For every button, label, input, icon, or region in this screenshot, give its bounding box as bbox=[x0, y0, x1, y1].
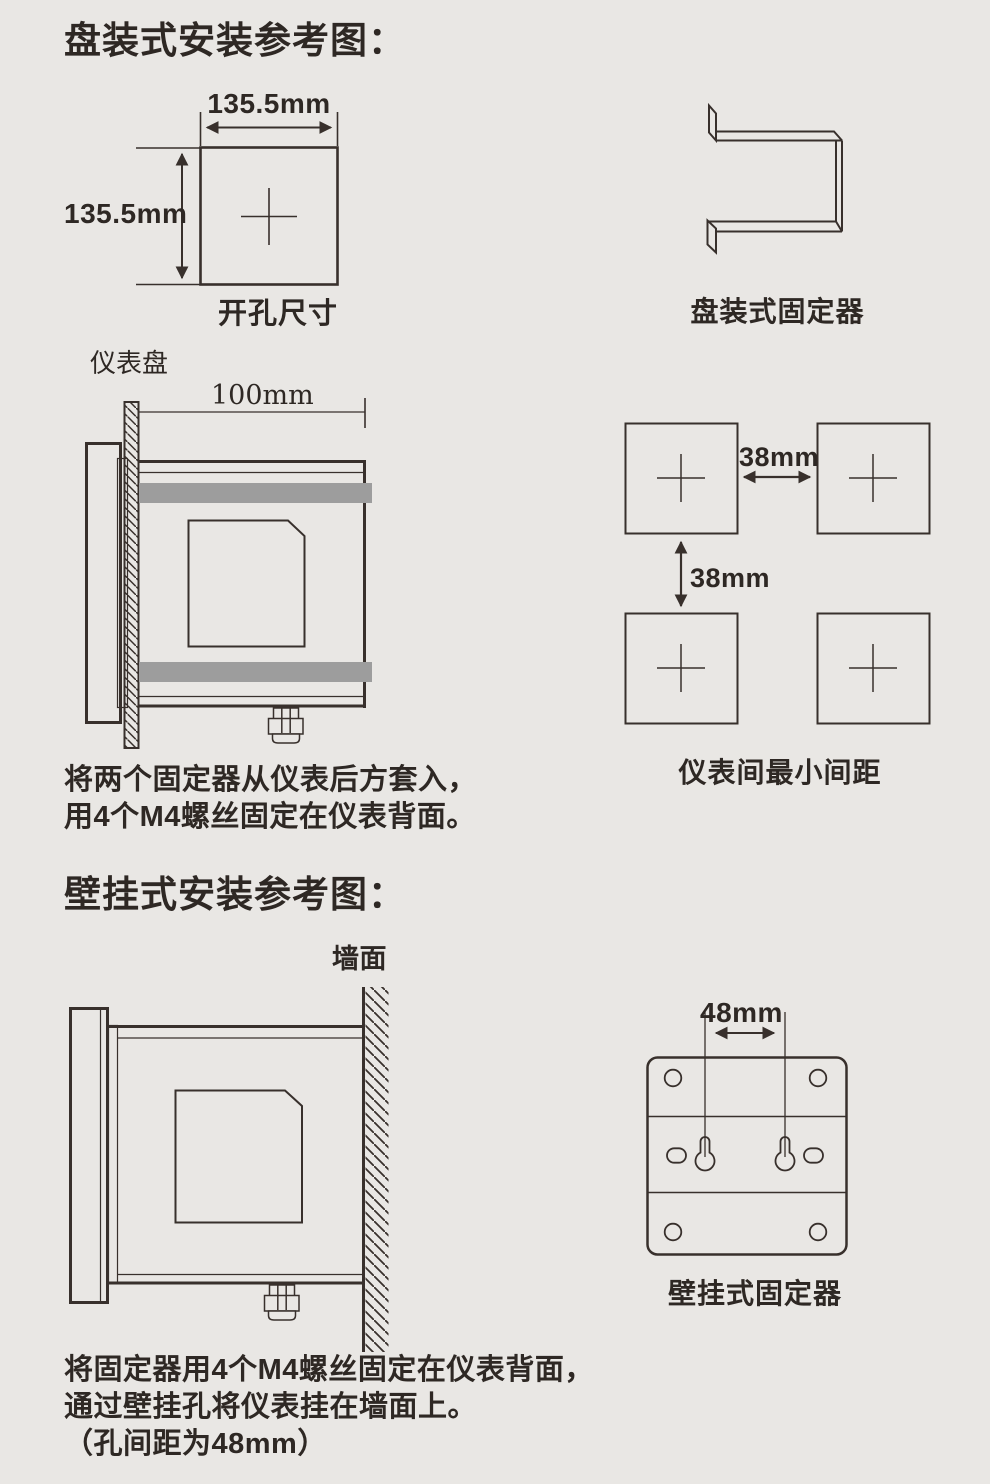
center-cross-icon bbox=[241, 188, 297, 245]
body-label-plate bbox=[189, 521, 305, 647]
panel-section-title: 盘装式安装参考图： bbox=[64, 20, 406, 63]
oval-hole bbox=[667, 1148, 823, 1162]
panel-side-view bbox=[87, 398, 373, 748]
cutout-height-dim: 135.5mm bbox=[64, 198, 172, 230]
fixture-bar-bottom bbox=[139, 662, 372, 682]
hole-spacing-dimension bbox=[705, 1012, 785, 1157]
wall-plate-caption: 壁挂式固定器 bbox=[655, 1278, 855, 1310]
depth-dim-label: 100mm bbox=[211, 380, 314, 411]
wall-hatch bbox=[366, 987, 389, 1352]
cable-gland bbox=[265, 1285, 300, 1320]
wall-instruction-line: 将固定器用4个M4螺丝固定在仪表背面， bbox=[64, 1352, 594, 1389]
bracket-body bbox=[708, 132, 842, 232]
cutout-caption: 开孔尺寸 bbox=[198, 298, 358, 331]
panel-hatch bbox=[125, 402, 139, 748]
spacing-horizontal-dim: 38mm bbox=[739, 442, 819, 473]
panel-bracket-diagram bbox=[708, 106, 843, 253]
panel-instruction-line: 用4个M4螺丝固定在仪表背面。 bbox=[64, 799, 477, 836]
installation-manual-page: 盘装式安装参考图： 135.5mm 135.5mm 开孔尺寸 盘装式固定器 仪表… bbox=[0, 0, 990, 1484]
cable-gland bbox=[269, 708, 304, 743]
cutout-width-dim: 135.5mm bbox=[200, 88, 338, 120]
wall-plate-diagram bbox=[648, 1012, 847, 1255]
panel-instructions: 将两个固定器从仪表后方套入， 用4个M4螺丝固定在仪表背面。 bbox=[64, 762, 477, 836]
bracket-bottom-flange bbox=[708, 221, 717, 253]
instrument-body bbox=[108, 1027, 363, 1284]
body-label-plate bbox=[176, 1091, 303, 1223]
spacing-caption: 仪表间最小间距 bbox=[660, 757, 900, 789]
corner-screw-hole bbox=[665, 1070, 827, 1241]
instrument-bezel bbox=[71, 1009, 108, 1303]
panel-board-label: 仪表盘 bbox=[90, 350, 168, 380]
instrument-bezel bbox=[87, 444, 121, 723]
wall-instruction-line: （孔间距为48mm） bbox=[64, 1426, 594, 1463]
panel-bracket-caption: 盘装式固定器 bbox=[685, 296, 870, 328]
wall-instruction-line: 通过壁挂孔将仪表挂在墙面上。 bbox=[64, 1389, 594, 1426]
spacing-vertical-dim: 38mm bbox=[690, 563, 770, 594]
bracket-top-flange bbox=[709, 106, 716, 141]
panel-instruction-line: 将两个固定器从仪表后方套入， bbox=[64, 762, 477, 799]
wall-instructions: 将固定器用4个M4螺丝固定在仪表背面， 通过壁挂孔将仪表挂在墙面上。 （孔间距为… bbox=[64, 1352, 594, 1463]
wall-side-view bbox=[71, 987, 389, 1352]
wall-surface-label: 墙面 bbox=[332, 944, 387, 975]
wall-section-title: 壁挂式安装参考图： bbox=[64, 874, 406, 917]
bezel-gap bbox=[109, 1026, 118, 1284]
fixture-bar-top bbox=[139, 483, 372, 503]
plate-hole-spacing-dim: 48mm bbox=[700, 997, 783, 1029]
keyhole-slot bbox=[696, 1137, 795, 1170]
